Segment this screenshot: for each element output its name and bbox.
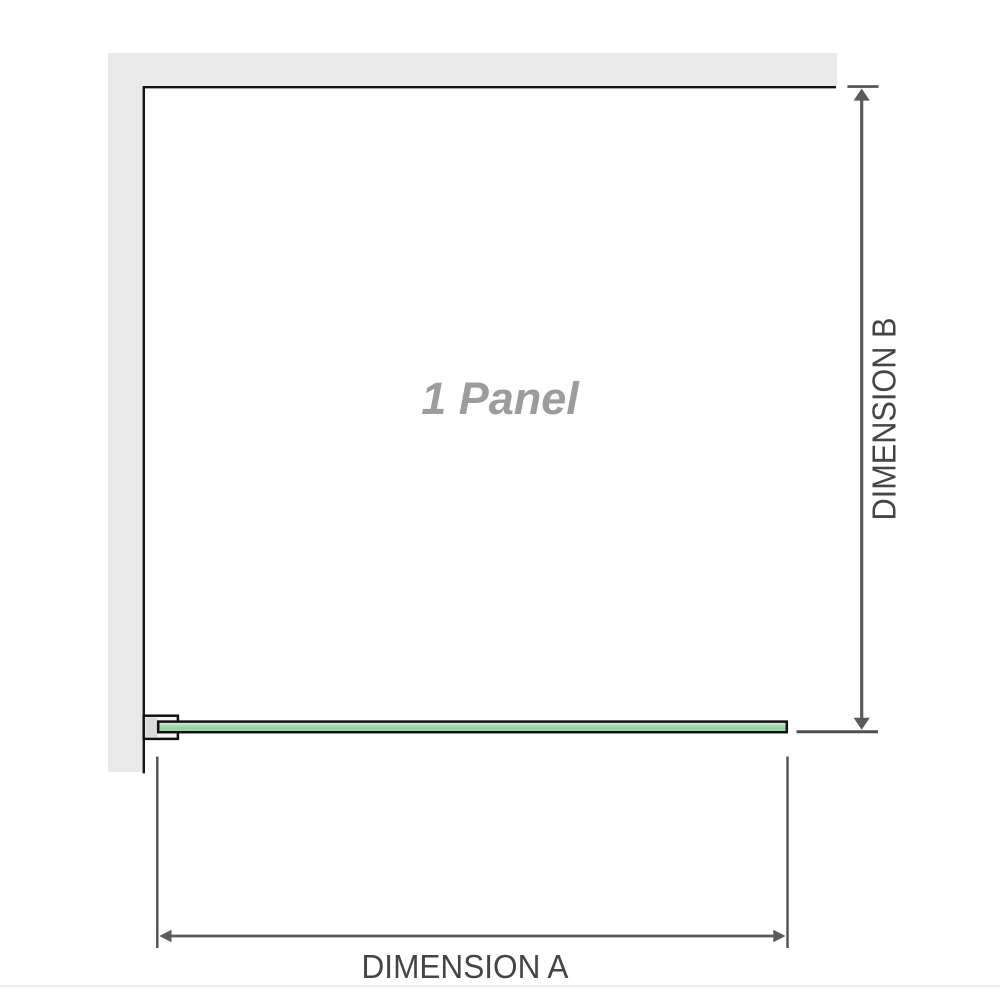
svg-text:DIMENSION B: DIMENSION B <box>866 318 903 521</box>
svg-text:1 Panel: 1 Panel <box>421 373 580 424</box>
svg-text:DIMENSION A: DIMENSION A <box>362 948 569 985</box>
